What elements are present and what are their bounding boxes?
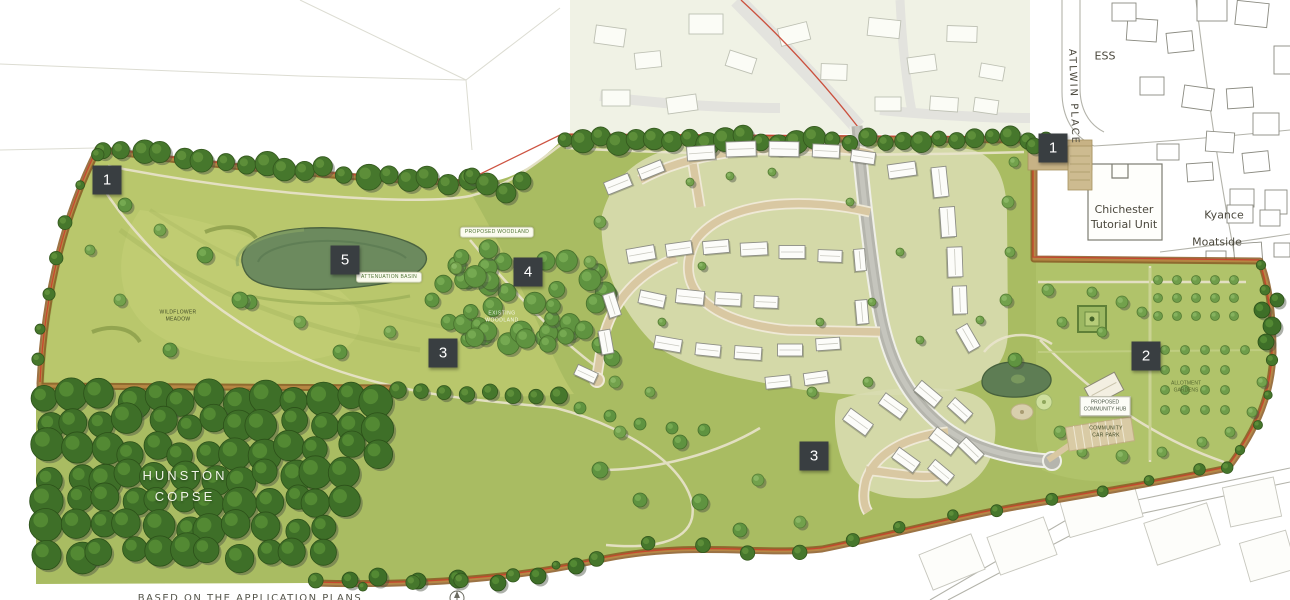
label-pill-woodland: PROPOSED WOODLAND: [460, 227, 534, 238]
masterplan-stage: 1154323HUNSTON COPSEESSATLWIN PLACEChich…: [0, 0, 1290, 600]
plan-marker-1-west: 1: [93, 166, 122, 195]
label-allotments: ALLOTMENT GARDENS: [1171, 380, 1201, 394]
label-ess: ESS: [1095, 50, 1116, 65]
plan-marker-2-allotments: 2: [1132, 342, 1161, 371]
label-chichester-tutorial-unit: Chichester Tutorial Unit: [1091, 203, 1157, 233]
label-kyance: Kyance: [1204, 209, 1243, 224]
label-community-hub: PROPOSED COMMUNITY HUB: [1080, 396, 1131, 416]
label-caption: BASED ON THE APPLICATION PLANS: [138, 592, 362, 600]
plan-marker-3-south: 3: [800, 442, 829, 471]
label-car-park: COMMUNITY CAR PARK: [1089, 425, 1123, 439]
label-meadow: WILDFLOWER MEADOW: [160, 309, 197, 323]
plan-marker-1-northeast: 1: [1039, 134, 1068, 163]
annotation-overlay: 1154323HUNSTON COPSEESSATLWIN PLACEChich…: [0, 0, 1290, 600]
label-moatside: Moatside: [1192, 236, 1242, 251]
plan-marker-5-basin: 5: [331, 246, 360, 275]
label-woodland-faint: EXISTING WOODLAND: [485, 310, 518, 324]
label-hunston-copse: HUNSTON COPSE: [142, 466, 227, 508]
plan-marker-4-woodland: 4: [514, 258, 543, 287]
label-pill-basin: ATTENUATION BASIN: [356, 272, 422, 283]
label-atlwin-place: ATLWIN PLACE: [1065, 49, 1082, 146]
plan-marker-3-west: 3: [429, 339, 458, 368]
